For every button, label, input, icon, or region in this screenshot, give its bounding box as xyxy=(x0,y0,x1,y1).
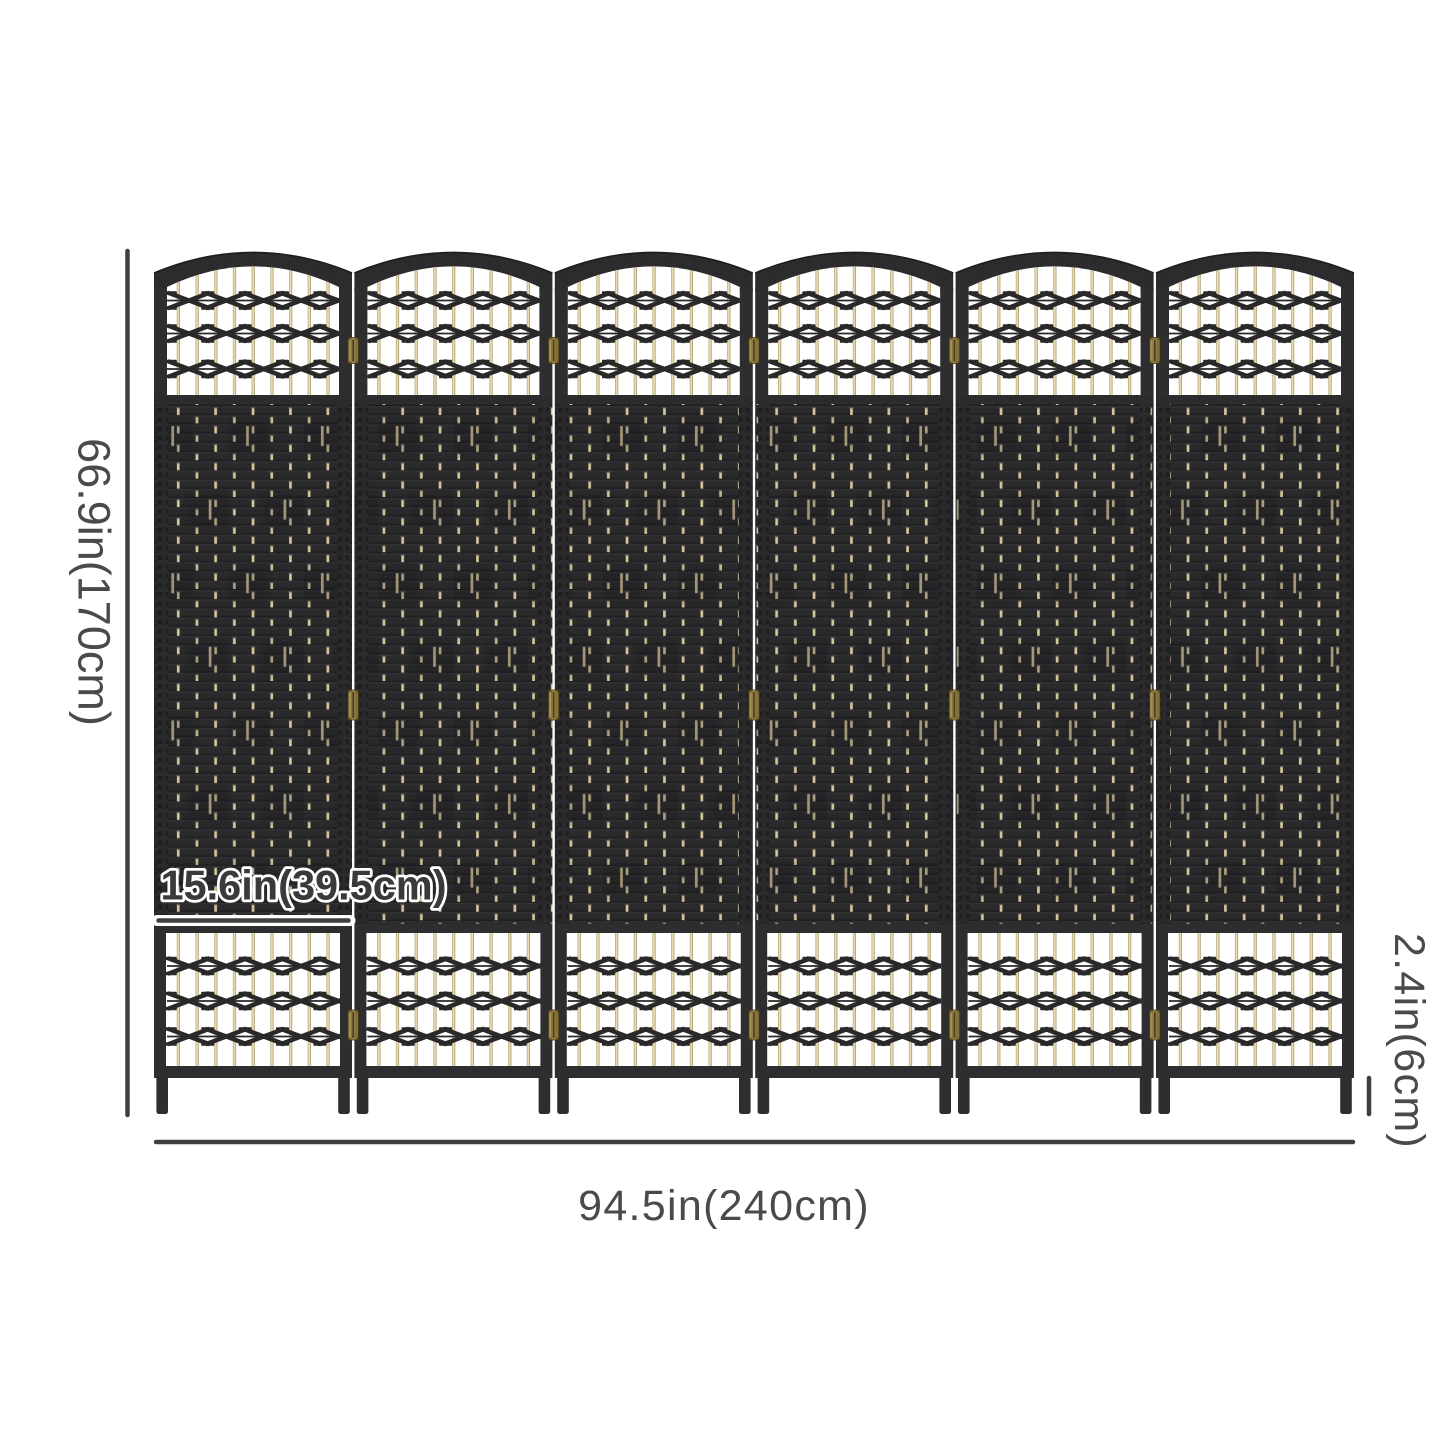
svg-text:94.5in(240cm): 94.5in(240cm) xyxy=(578,1182,870,1230)
svg-text:15.6in(39.5cm): 15.6in(39.5cm) xyxy=(160,862,446,909)
svg-text:2.4in(6cm): 2.4in(6cm) xyxy=(1385,933,1433,1149)
svg-text:66.9in(170cm): 66.9in(170cm) xyxy=(69,438,120,726)
